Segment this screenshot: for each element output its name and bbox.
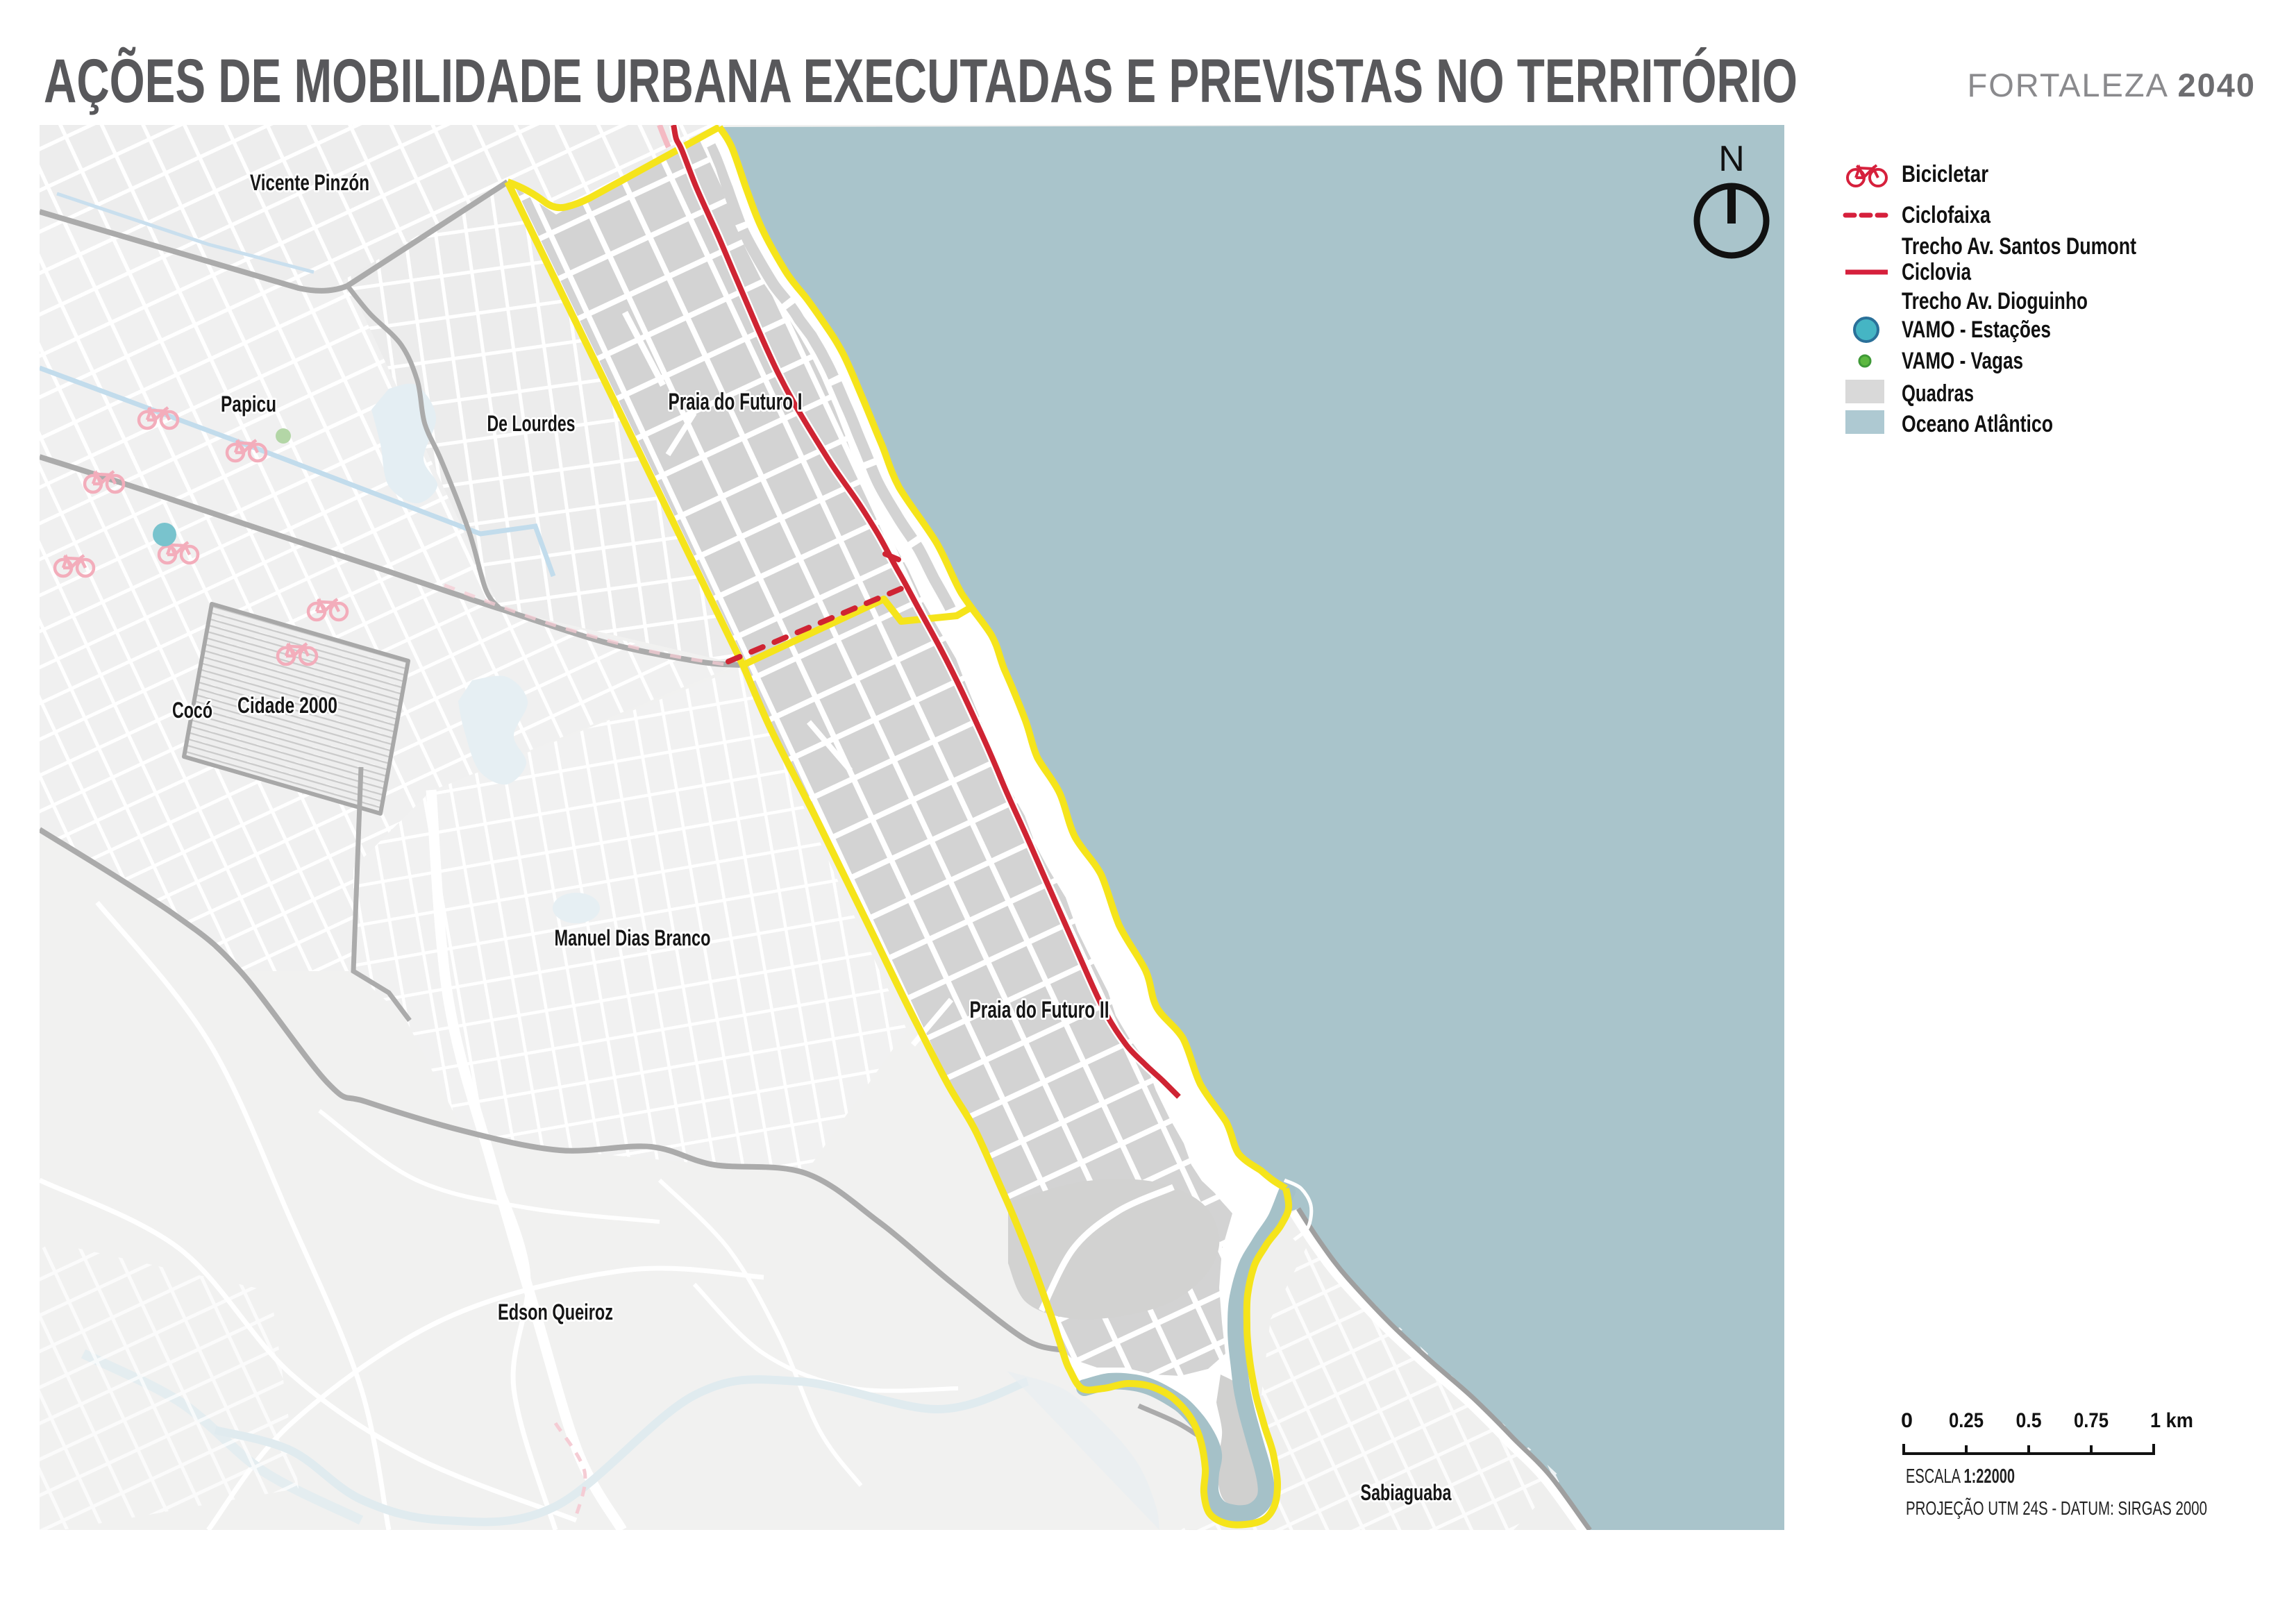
svg-text:Vicente Pinzón: Vicente Pinzón [250,170,369,195]
svg-text:0.5: 0.5 [2016,1409,2042,1432]
svg-text:Cocó: Cocó [172,698,212,723]
svg-text:Manuel Dias Branco: Manuel Dias Branco [555,925,711,950]
svg-text:Trecho Av. Santos Dumont: Trecho Av. Santos Dumont [1902,233,2136,260]
svg-text:Trecho Av. Dioguinho: Trecho Av. Dioguinho [1902,288,2088,314]
svg-text:AÇÕES DE MOBILIDADE URBANA EXE: AÇÕES DE MOBILIDADE URBANA EXECUTADAS E … [44,46,1798,115]
svg-text:Ciclofaixa: Ciclofaixa [1902,202,1991,228]
svg-text:VAMO - Vagas: VAMO - Vagas [1902,348,2023,374]
svg-text:FORTALEZA 2040: FORTALEZA 2040 [1967,67,2256,103]
svg-text:Papicu: Papicu [221,392,276,417]
svg-text:Oceano Atlântico: Oceano Atlântico [1902,411,2053,437]
svg-text:Edson Queiroz: Edson Queiroz [498,1300,613,1325]
svg-text:0: 0 [1901,1409,1913,1432]
svg-text:PROJEÇÃO UTM 24S - DATUM: SIRG: PROJEÇÃO UTM 24S - DATUM: SIRGAS 2000 [1906,1497,2207,1519]
svg-text:Quadras: Quadras [1902,380,1974,407]
svg-text:Cidade 2000: Cidade 2000 [237,693,337,718]
svg-text:ESCALA 1:22000: ESCALA 1:22000 [1906,1465,2015,1488]
svg-text:De Lourdes: De Lourdes [487,411,576,436]
svg-text:1 km: 1 km [2150,1409,2193,1432]
svg-text:N: N [1718,139,1745,179]
svg-text:0.75: 0.75 [2074,1409,2109,1432]
svg-text:Ciclovia: Ciclovia [1902,259,1972,285]
svg-text:Sabiaguaba: Sabiaguaba [1361,1480,1452,1505]
svg-text:Praia do Futuro I: Praia do Futuro I [669,389,803,415]
svg-text:0.25: 0.25 [1949,1409,1984,1432]
svg-text:Bicicletar: Bicicletar [1902,161,1988,187]
svg-text:Praia do Futuro II: Praia do Futuro II [970,997,1109,1023]
svg-text:VAMO - Estações: VAMO - Estações [1902,317,2051,343]
